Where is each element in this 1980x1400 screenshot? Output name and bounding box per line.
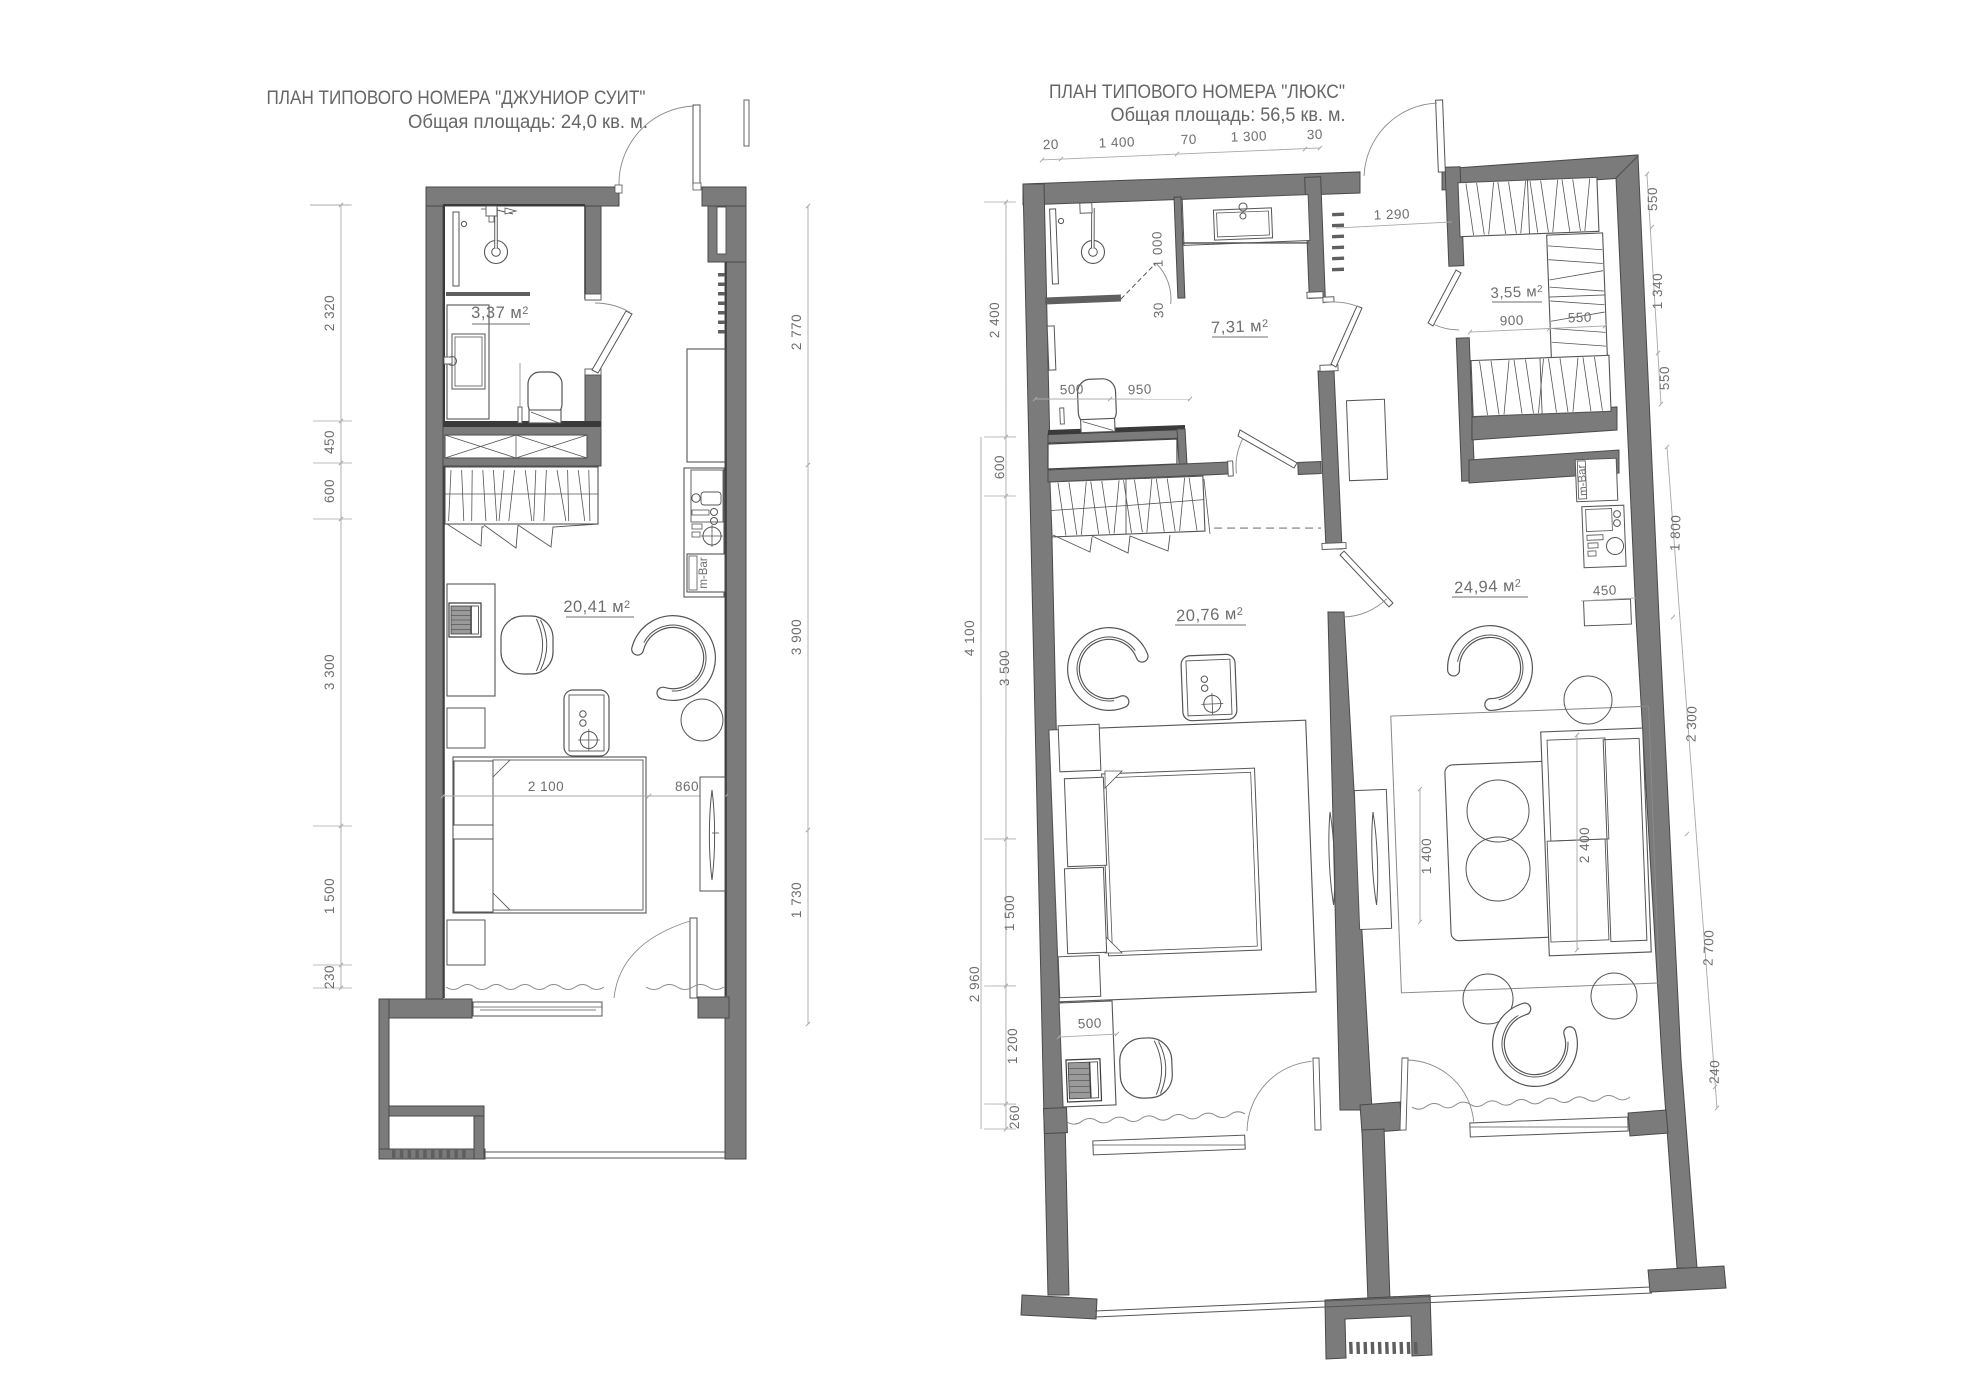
svg-text:Общая площадь: 56,5 кв. м.: Общая площадь: 56,5 кв. м. (1111, 105, 1346, 126)
svg-text:70: 70 (1181, 132, 1198, 148)
svg-text:2 300: 2 300 (1683, 705, 1699, 742)
svg-text:3,37 м2: 3,37 м2 (471, 304, 529, 322)
svg-text:2 960: 2 960 (967, 966, 982, 1002)
svg-text:2 320: 2 320 (322, 295, 337, 331)
svg-text:1 340: 1 340 (1650, 273, 1665, 309)
svg-text:450: 450 (322, 430, 337, 454)
svg-text:550: 550 (1645, 187, 1660, 211)
svg-text:20: 20 (1043, 137, 1060, 153)
svg-text:550: 550 (1657, 366, 1672, 390)
svg-text:20,76 м2: 20,76 м2 (1176, 605, 1244, 626)
svg-text:1 000: 1 000 (1149, 231, 1165, 268)
svg-text:1 800: 1 800 (1667, 515, 1683, 552)
svg-text:3 300: 3 300 (322, 654, 337, 690)
svg-text:1 400: 1 400 (1419, 838, 1434, 874)
svg-text:550: 550 (1568, 310, 1593, 326)
svg-text:20,41 м2: 20,41 м2 (563, 598, 630, 616)
svg-text:2 400: 2 400 (1577, 827, 1592, 863)
svg-text:500: 500 (1078, 1015, 1103, 1031)
svg-text:240: 240 (1707, 1060, 1723, 1084)
svg-text:Общая площадь: 24,0 кв. м.: Общая площадь: 24,0 кв. м. (408, 112, 648, 133)
svg-text:30: 30 (1151, 302, 1167, 319)
svg-text:2 100: 2 100 (528, 779, 564, 794)
svg-text:450: 450 (1593, 583, 1618, 599)
svg-text:1 200: 1 200 (1005, 1028, 1020, 1064)
svg-text:500: 500 (1060, 382, 1085, 398)
svg-text:1 290: 1 290 (1373, 206, 1410, 222)
svg-text:1 500: 1 500 (322, 878, 337, 914)
svg-text:3 500: 3 500 (997, 650, 1012, 686)
svg-text:4 100: 4 100 (962, 620, 977, 656)
svg-text:2 400: 2 400 (987, 302, 1002, 338)
svg-text:ПЛАН ТИПОВОГО НОМЕРА "ДЖУНИОР: ПЛАН ТИПОВОГО НОМЕРА "ДЖУНИОР СУИТ" (267, 88, 646, 109)
svg-text:230: 230 (322, 965, 337, 989)
svg-text:m-Bar: m-Bar (698, 557, 710, 588)
svg-text:3,55 м2: 3,55 м2 (1490, 283, 1543, 302)
svg-text:600: 600 (992, 455, 1007, 479)
svg-text:1 500: 1 500 (1002, 895, 1017, 931)
svg-text:30: 30 (1307, 127, 1324, 143)
svg-text:7,31 м2: 7,31 м2 (1211, 317, 1269, 337)
svg-text:600: 600 (322, 479, 337, 503)
svg-text:900: 900 (1500, 313, 1525, 329)
svg-text:1 730: 1 730 (789, 882, 804, 918)
svg-text:1 400: 1 400 (1098, 134, 1135, 150)
svg-text:860: 860 (675, 779, 699, 794)
svg-text:950: 950 (1128, 382, 1153, 398)
svg-text:ПЛАН ТИПОВОГО НОМЕРА "ЛЮКС": ПЛАН ТИПОВОГО НОМЕРА "ЛЮКС" (1049, 82, 1345, 103)
svg-text:2 700: 2 700 (1700, 929, 1716, 966)
svg-text:1 300: 1 300 (1230, 128, 1267, 144)
svg-text:260: 260 (1007, 1105, 1022, 1129)
svg-text:3 900: 3 900 (789, 619, 804, 655)
svg-text:m-Bar: m-Bar (1576, 464, 1590, 496)
svg-text:2 770: 2 770 (789, 314, 804, 350)
svg-text:24,94 м2: 24,94 м2 (1454, 577, 1522, 598)
